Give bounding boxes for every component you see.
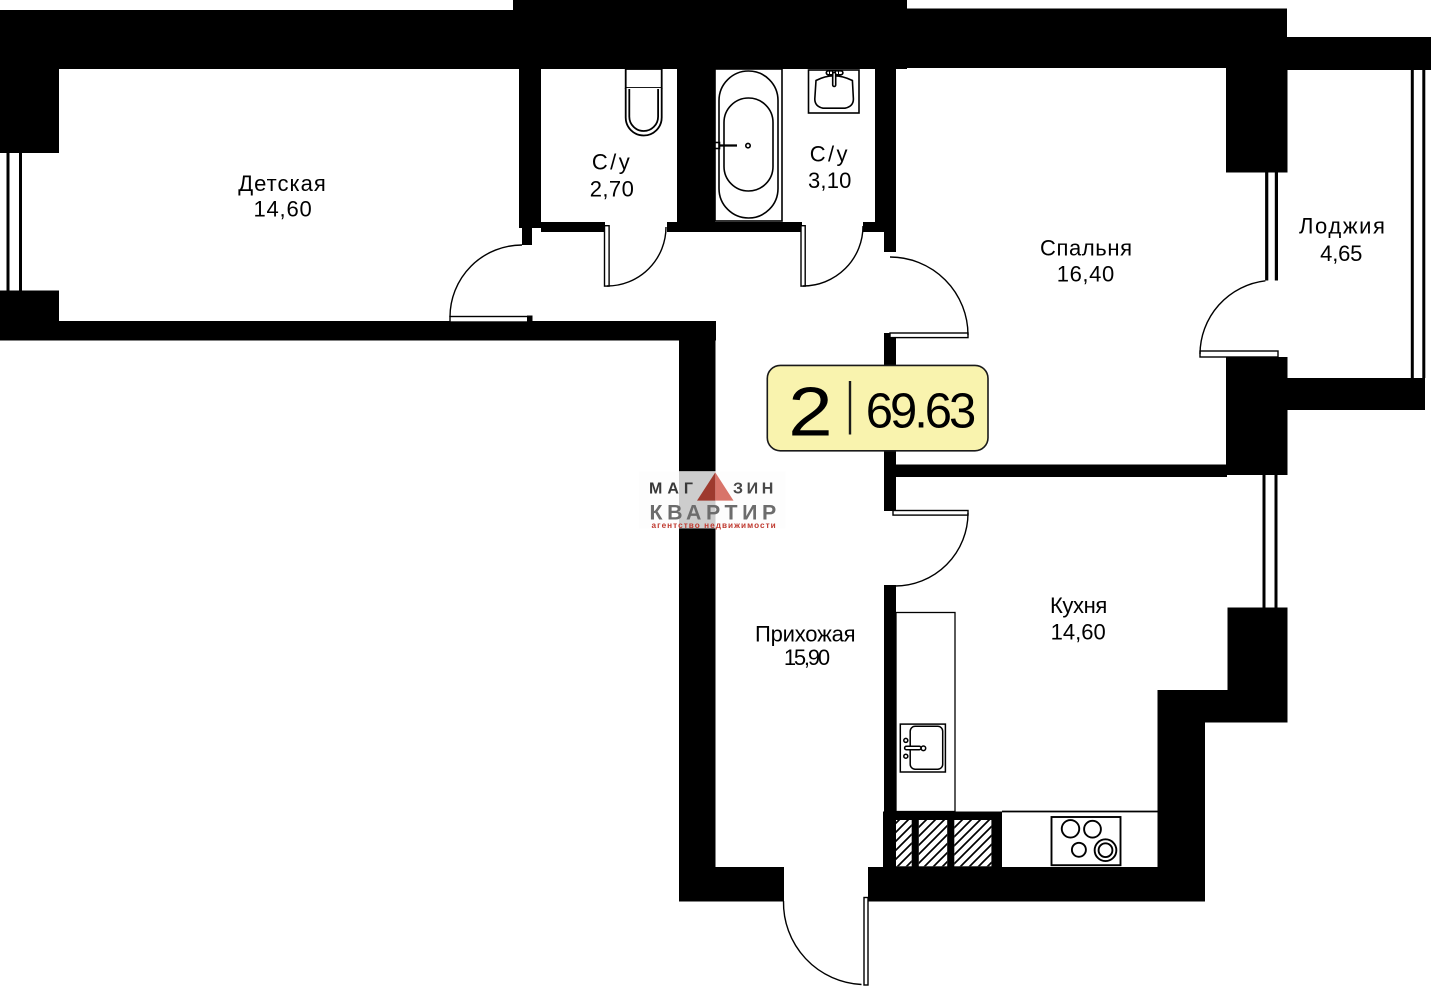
svg-text:15,90: 15,90 (784, 645, 830, 670)
svg-text:Прихожая: Прихожая (755, 621, 855, 646)
svg-text:ЗИН: ЗИН (733, 480, 777, 497)
svg-text:Кухня: Кухня (1050, 593, 1107, 618)
svg-text:14,60: 14,60 (253, 197, 312, 222)
svg-text:агентство недвижимости: агентство недвижимости (652, 521, 777, 530)
svg-text:С/у: С/у (592, 150, 632, 175)
svg-text:4,65: 4,65 (1320, 241, 1362, 266)
svg-text:3,10: 3,10 (808, 168, 852, 193)
svg-text:Лоджия: Лоджия (1299, 214, 1387, 239)
svg-text:69.63: 69.63 (866, 385, 975, 439)
svg-text:16,40: 16,40 (1057, 262, 1115, 287)
svg-text:Детская: Детская (238, 171, 327, 196)
svg-text:2: 2 (788, 372, 832, 450)
svg-text:С/у: С/у (810, 141, 850, 166)
svg-text:МАГ: МАГ (649, 480, 698, 497)
svg-text:2,70: 2,70 (590, 177, 634, 202)
svg-text:14,60: 14,60 (1051, 620, 1106, 645)
svg-text:Спальня: Спальня (1040, 236, 1133, 261)
